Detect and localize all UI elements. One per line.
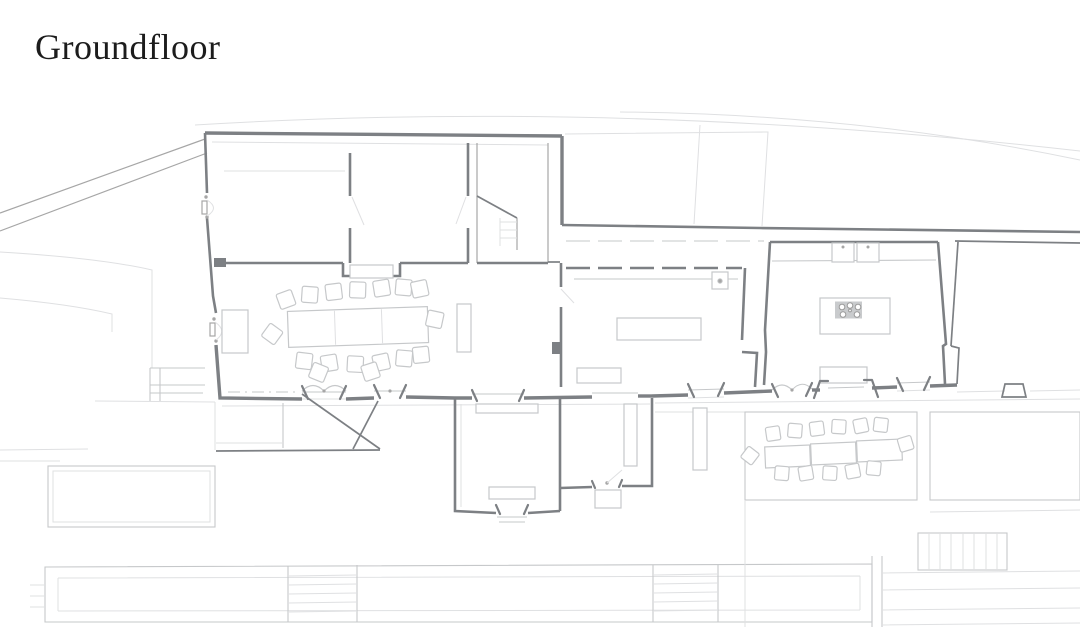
stairs-east <box>918 533 1007 570</box>
middle-room-table <box>617 318 701 340</box>
stair-closet <box>624 404 637 466</box>
kitchen-island <box>820 298 890 334</box>
room-east <box>951 242 959 384</box>
door-swing-west-1 <box>202 195 214 218</box>
fireplace <box>222 310 248 353</box>
doorway-mat <box>489 487 535 499</box>
terrace-dining <box>655 408 1080 512</box>
doorway-mat <box>577 368 621 383</box>
middle-room <box>566 268 757 387</box>
dining-table <box>287 307 428 348</box>
porch-left <box>455 398 560 522</box>
outdoor-table <box>811 442 857 465</box>
room-top-middle <box>456 143 477 263</box>
stairs-band-left <box>288 565 357 622</box>
ramp <box>215 394 380 451</box>
outdoor-table-group <box>739 415 916 484</box>
planter <box>693 408 707 470</box>
exterior-steps-west <box>95 368 215 402</box>
doorway-mat <box>350 265 393 278</box>
entry-step <box>595 490 621 508</box>
floor-plan <box>0 0 1080 628</box>
porch-right <box>560 398 652 508</box>
stairs-band-right <box>653 564 718 622</box>
stair-room <box>477 196 517 250</box>
main-hall <box>222 263 574 387</box>
room-top-left <box>224 153 364 263</box>
outdoor-table <box>765 445 811 468</box>
patio-left <box>48 466 215 527</box>
site-lines <box>0 112 1080 461</box>
outdoor-table <box>856 439 902 462</box>
kitchen <box>764 242 946 385</box>
lower-terrace-band <box>30 500 1080 627</box>
sideboard <box>457 304 471 352</box>
dining-table-group <box>259 277 446 385</box>
rooms-south-wall <box>214 258 560 278</box>
door-swing-west-2 <box>210 317 222 342</box>
